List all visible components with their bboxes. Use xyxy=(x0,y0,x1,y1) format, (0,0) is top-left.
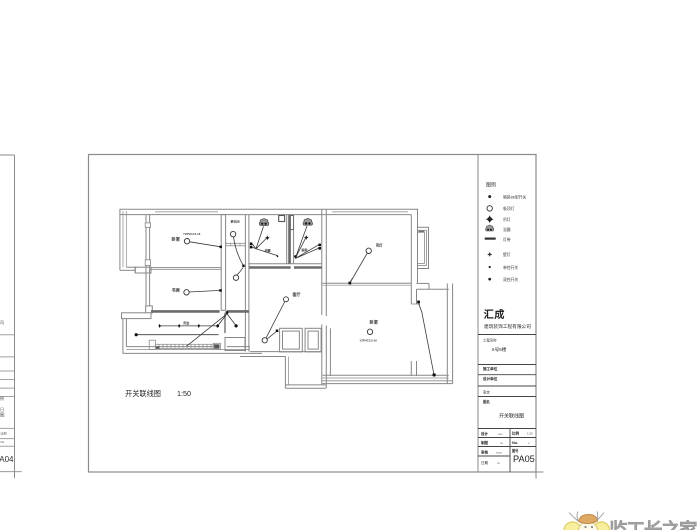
svg-text:制图: 制图 xyxy=(481,440,489,445)
svg-text:1:50: 1:50 xyxy=(177,389,191,398)
svg-text:日: 日 xyxy=(0,407,4,412)
svg-text:壁灯: 壁灯 xyxy=(503,252,511,257)
svg-text:阳台: 阳台 xyxy=(184,320,190,325)
svg-text:灯带: 灯带 xyxy=(503,237,511,242)
svg-text:浴霸: 浴霸 xyxy=(265,247,271,252)
svg-text:客厅: 客厅 xyxy=(292,291,301,297)
svg-text:图例: 图例 xyxy=(486,182,496,189)
svg-text:图名: 图名 xyxy=(483,399,490,404)
svg-text:施工单位: 施工单位 xyxy=(483,366,498,371)
svg-text:开关联线图: 开关联线图 xyxy=(125,389,161,398)
svg-text:监工长之家: 监工长之家 xyxy=(609,520,698,530)
svg-text:YZPVC2.5-16: YZPVC2.5-16 xyxy=(183,232,201,236)
svg-text:YZPVC2.5-16: YZPVC2.5-16 xyxy=(360,338,378,342)
svg-text:单控开关: 单控开关 xyxy=(503,265,518,270)
svg-text:xx: xx xyxy=(500,441,504,445)
svg-text:暗装86型开关: 暗装86型开关 xyxy=(503,194,526,199)
svg-text:xxxx: xxxx xyxy=(496,451,503,455)
svg-text:开关联线图: 开关联线图 xyxy=(499,413,524,420)
svg-text:卧室: 卧室 xyxy=(172,236,181,243)
svg-text:司: 司 xyxy=(0,320,4,325)
svg-text:设计单位: 设计单位 xyxy=(483,376,498,381)
svg-text:比例: 比例 xyxy=(1,431,7,436)
svg-text:更衣间: 更衣间 xyxy=(231,219,240,224)
svg-text:审定: 审定 xyxy=(483,390,490,395)
svg-text:X号5楼: X号5楼 xyxy=(492,346,507,353)
svg-text:例: 例 xyxy=(0,395,4,401)
svg-text:PA04: PA04 xyxy=(0,455,14,464)
svg-text:No.: No. xyxy=(512,441,518,445)
svg-text:No: No xyxy=(1,440,5,444)
svg-text:设计: 设计 xyxy=(481,431,489,436)
svg-text:工程名称: 工程名称 xyxy=(483,338,497,343)
svg-text:1:50: 1:50 xyxy=(527,432,533,436)
svg-text:吊灯: 吊灯 xyxy=(503,217,511,222)
svg-text:卧室: 卧室 xyxy=(370,318,379,325)
svg-text:xx: xx xyxy=(497,461,501,465)
svg-text:xxx: xxx xyxy=(498,432,503,436)
svg-text:日期: 日期 xyxy=(481,460,489,465)
svg-text:汇成: 汇成 xyxy=(484,308,505,321)
svg-text:审核: 审核 xyxy=(481,450,489,455)
svg-text:建筑装饰工程有限公司: 建筑装饰工程有限公司 xyxy=(484,323,531,330)
svg-text:厨房: 厨房 xyxy=(302,247,308,252)
svg-text:图号: 图号 xyxy=(512,448,519,453)
svg-text:PA05: PA05 xyxy=(513,454,535,464)
svg-text:书房: 书房 xyxy=(172,287,180,294)
svg-text:浴霸: 浴霸 xyxy=(503,227,511,232)
svg-text:吊灯: 吊灯 xyxy=(376,243,383,248)
svg-text:吸顶灯: 吸顶灯 xyxy=(503,206,515,211)
svg-text:比例: 比例 xyxy=(512,431,520,436)
svg-text:双控开关: 双控开关 xyxy=(503,277,518,282)
